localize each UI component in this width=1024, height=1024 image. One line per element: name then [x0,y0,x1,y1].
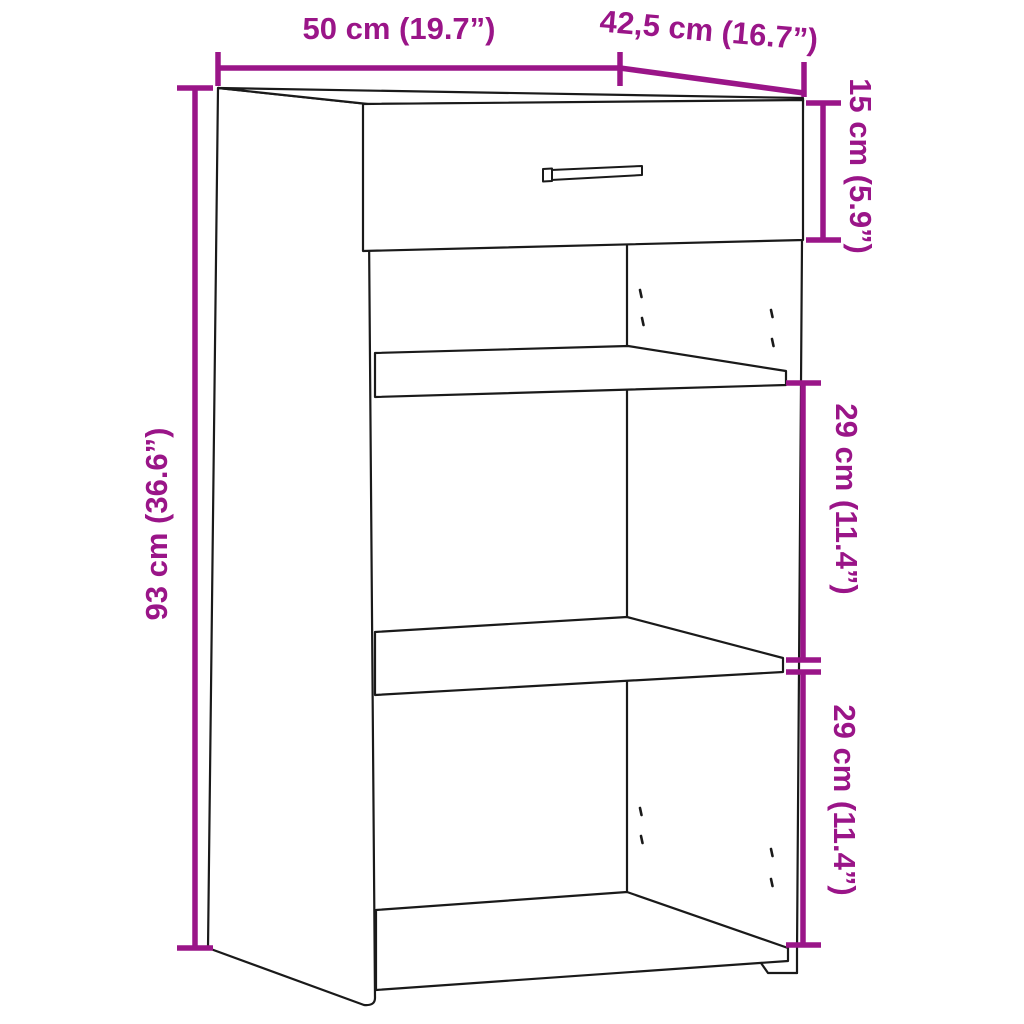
dimension-depth [620,62,804,97]
width-label: 50 cm (19.7”) [303,11,496,46]
depth-label: 42,5 cm (16.7”) [598,4,819,58]
dimension-diagram: 50 cm (19.7”) 42,5 cm (16.7”) 93 cm (36.… [0,0,1024,1024]
left-side-panel [208,88,375,1005]
pin-hole [641,836,643,843]
drawer-height-label: 15 cm (5.9”) [843,78,878,254]
pin-hole [640,808,642,815]
pin-hole [771,310,773,317]
height-label: 93 cm (36.6”) [139,428,174,621]
dimension-height [177,88,213,948]
handle-mount [543,169,552,182]
dimension-width [218,52,620,86]
pin-hole [640,290,642,297]
upper-compartment-label: 29 cm (11.4”) [829,403,864,594]
lower-compartment-label: 29 cm (11.4”) [827,704,862,895]
pin-hole [771,879,773,886]
cabinet-drawing [208,88,803,1005]
dimension-line [620,68,804,93]
pin-hole [771,849,773,856]
pin-hole [642,318,644,325]
diagram-canvas: 50 cm (19.7”) 42,5 cm (16.7”) 93 cm (36.… [0,0,1024,1024]
dimension-drawer-height [806,103,841,240]
pin-hole [772,339,774,346]
